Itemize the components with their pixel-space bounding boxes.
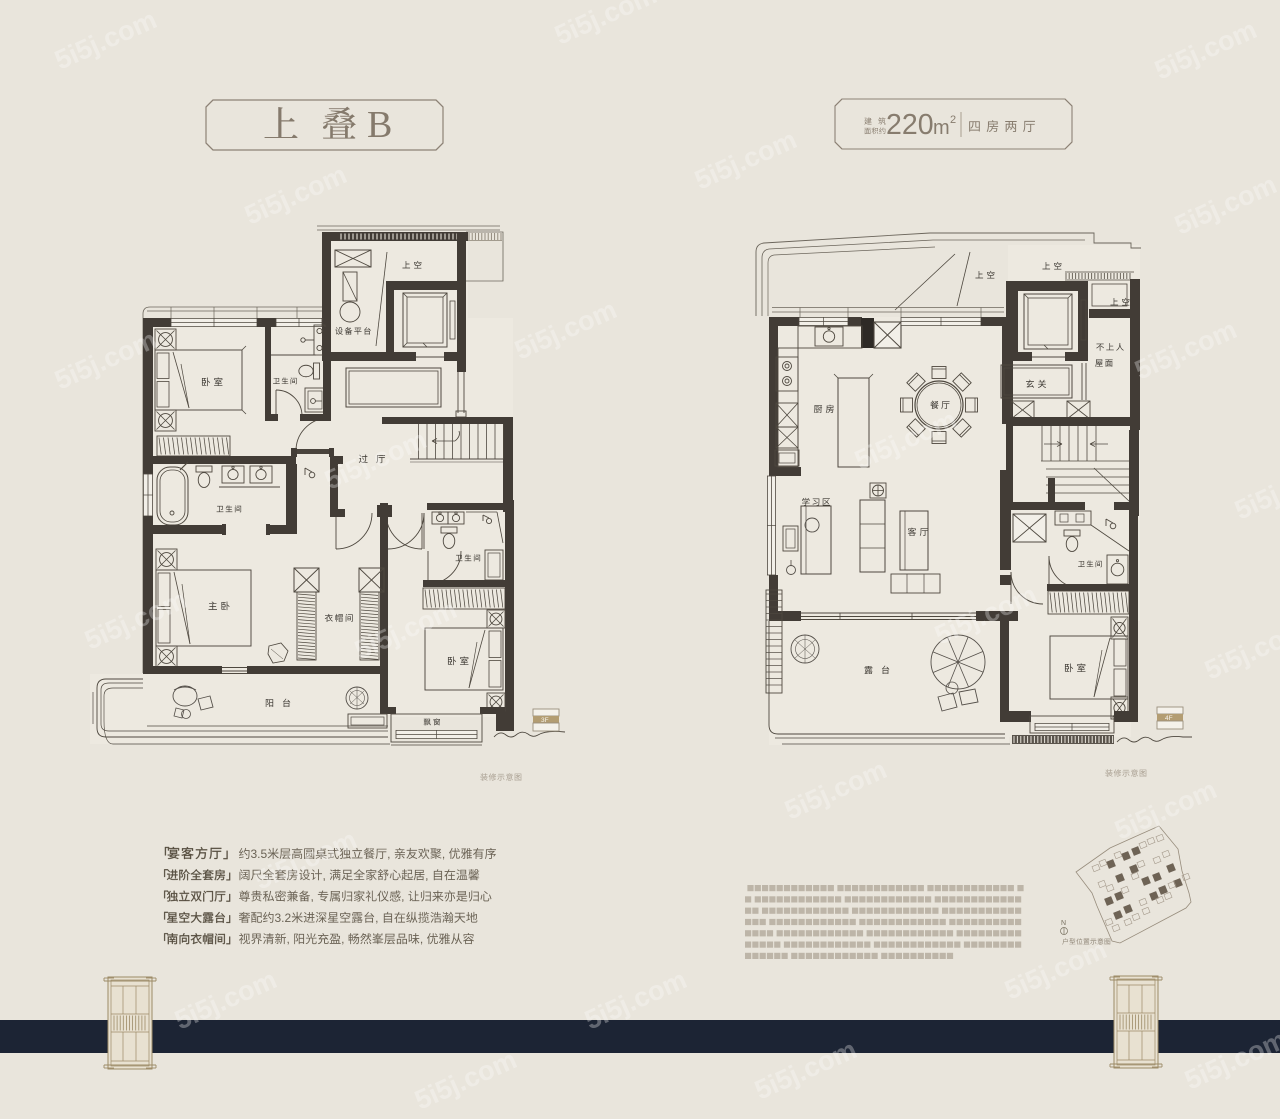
svg-text:N: N (1061, 920, 1066, 927)
svg-text:5i5j.com: 5i5j.com (690, 124, 801, 195)
svg-text:5i5j.com: 5i5j.com (1230, 454, 1280, 525)
svg-text:5i5j.com: 5i5j.com (1130, 314, 1241, 385)
svg-text:3.2: 3.2 (275, 911, 292, 925)
svg-text:,: , (311, 890, 314, 904)
svg-text:220: 220 (886, 109, 934, 141)
svg-text:m: m (933, 117, 950, 139)
svg-text:,: , (387, 847, 390, 861)
svg-text:,: , (375, 911, 378, 925)
svg-text:2: 2 (950, 114, 956, 126)
svg-text:5i5j.com: 5i5j.com (1200, 614, 1280, 685)
svg-text:5i5j.com: 5i5j.com (780, 754, 891, 825)
svg-text:,: , (287, 932, 290, 946)
svg-text:5i5j.com: 5i5j.com (1170, 169, 1280, 240)
svg-text:B: B (367, 104, 392, 146)
svg-text:,: , (420, 932, 423, 946)
svg-text:5i5j.com: 5i5j.com (410, 1044, 521, 1115)
svg-text:3.5: 3.5 (251, 847, 268, 861)
svg-text:5i5j.com: 5i5j.com (1110, 774, 1221, 845)
svg-text:5i5j.com: 5i5j.com (240, 159, 351, 230)
svg-text:5i5j.com: 5i5j.com (510, 294, 621, 365)
svg-text:5i5j.com: 5i5j.com (1150, 14, 1261, 85)
svg-text:5i5j.com: 5i5j.com (50, 4, 161, 75)
svg-text:,: , (401, 890, 404, 904)
svg-text:,: , (341, 932, 344, 946)
svg-text:5i5j.com: 5i5j.com (250, 824, 361, 895)
svg-text:,: , (323, 868, 326, 882)
svg-text:5i5j.com: 5i5j.com (550, 0, 661, 50)
svg-text:,: , (442, 847, 445, 861)
svg-text:,: , (425, 868, 428, 882)
